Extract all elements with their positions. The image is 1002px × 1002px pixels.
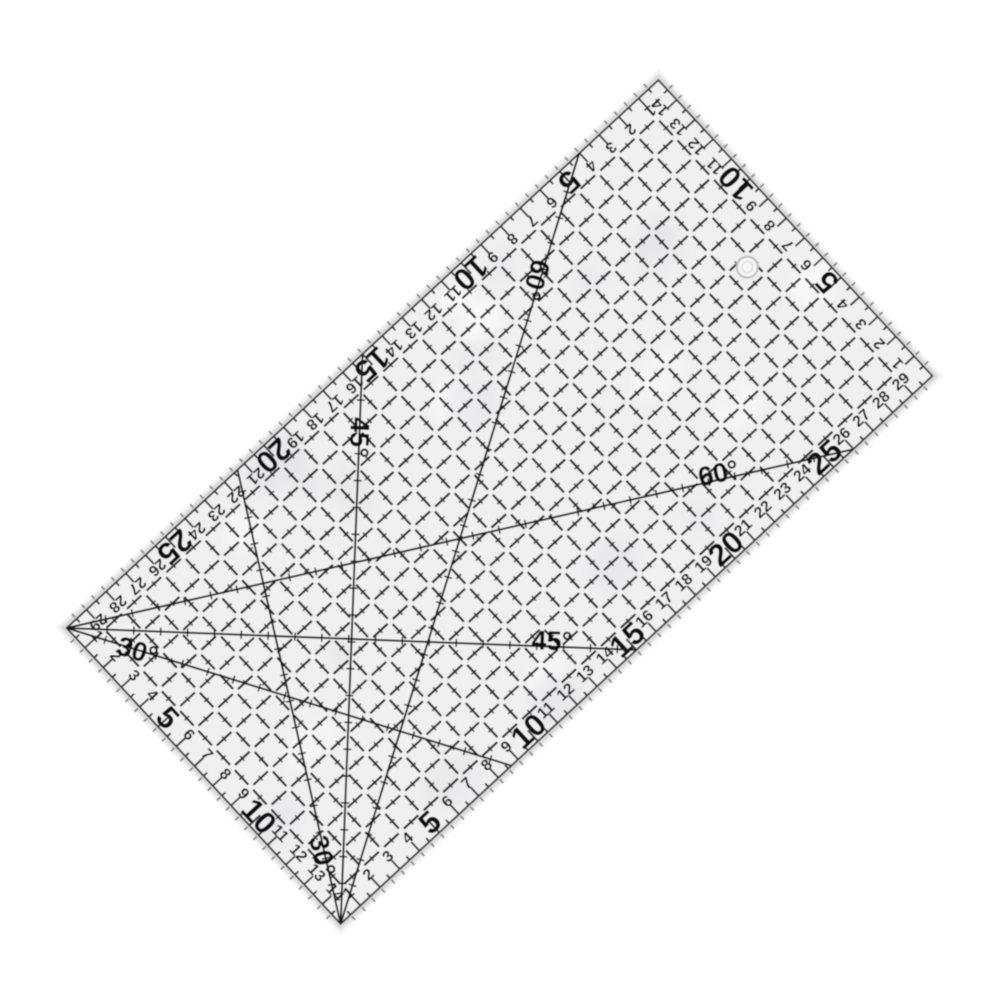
svg-text:45°: 45° xyxy=(531,625,573,657)
svg-text:45°: 45° xyxy=(344,417,376,459)
